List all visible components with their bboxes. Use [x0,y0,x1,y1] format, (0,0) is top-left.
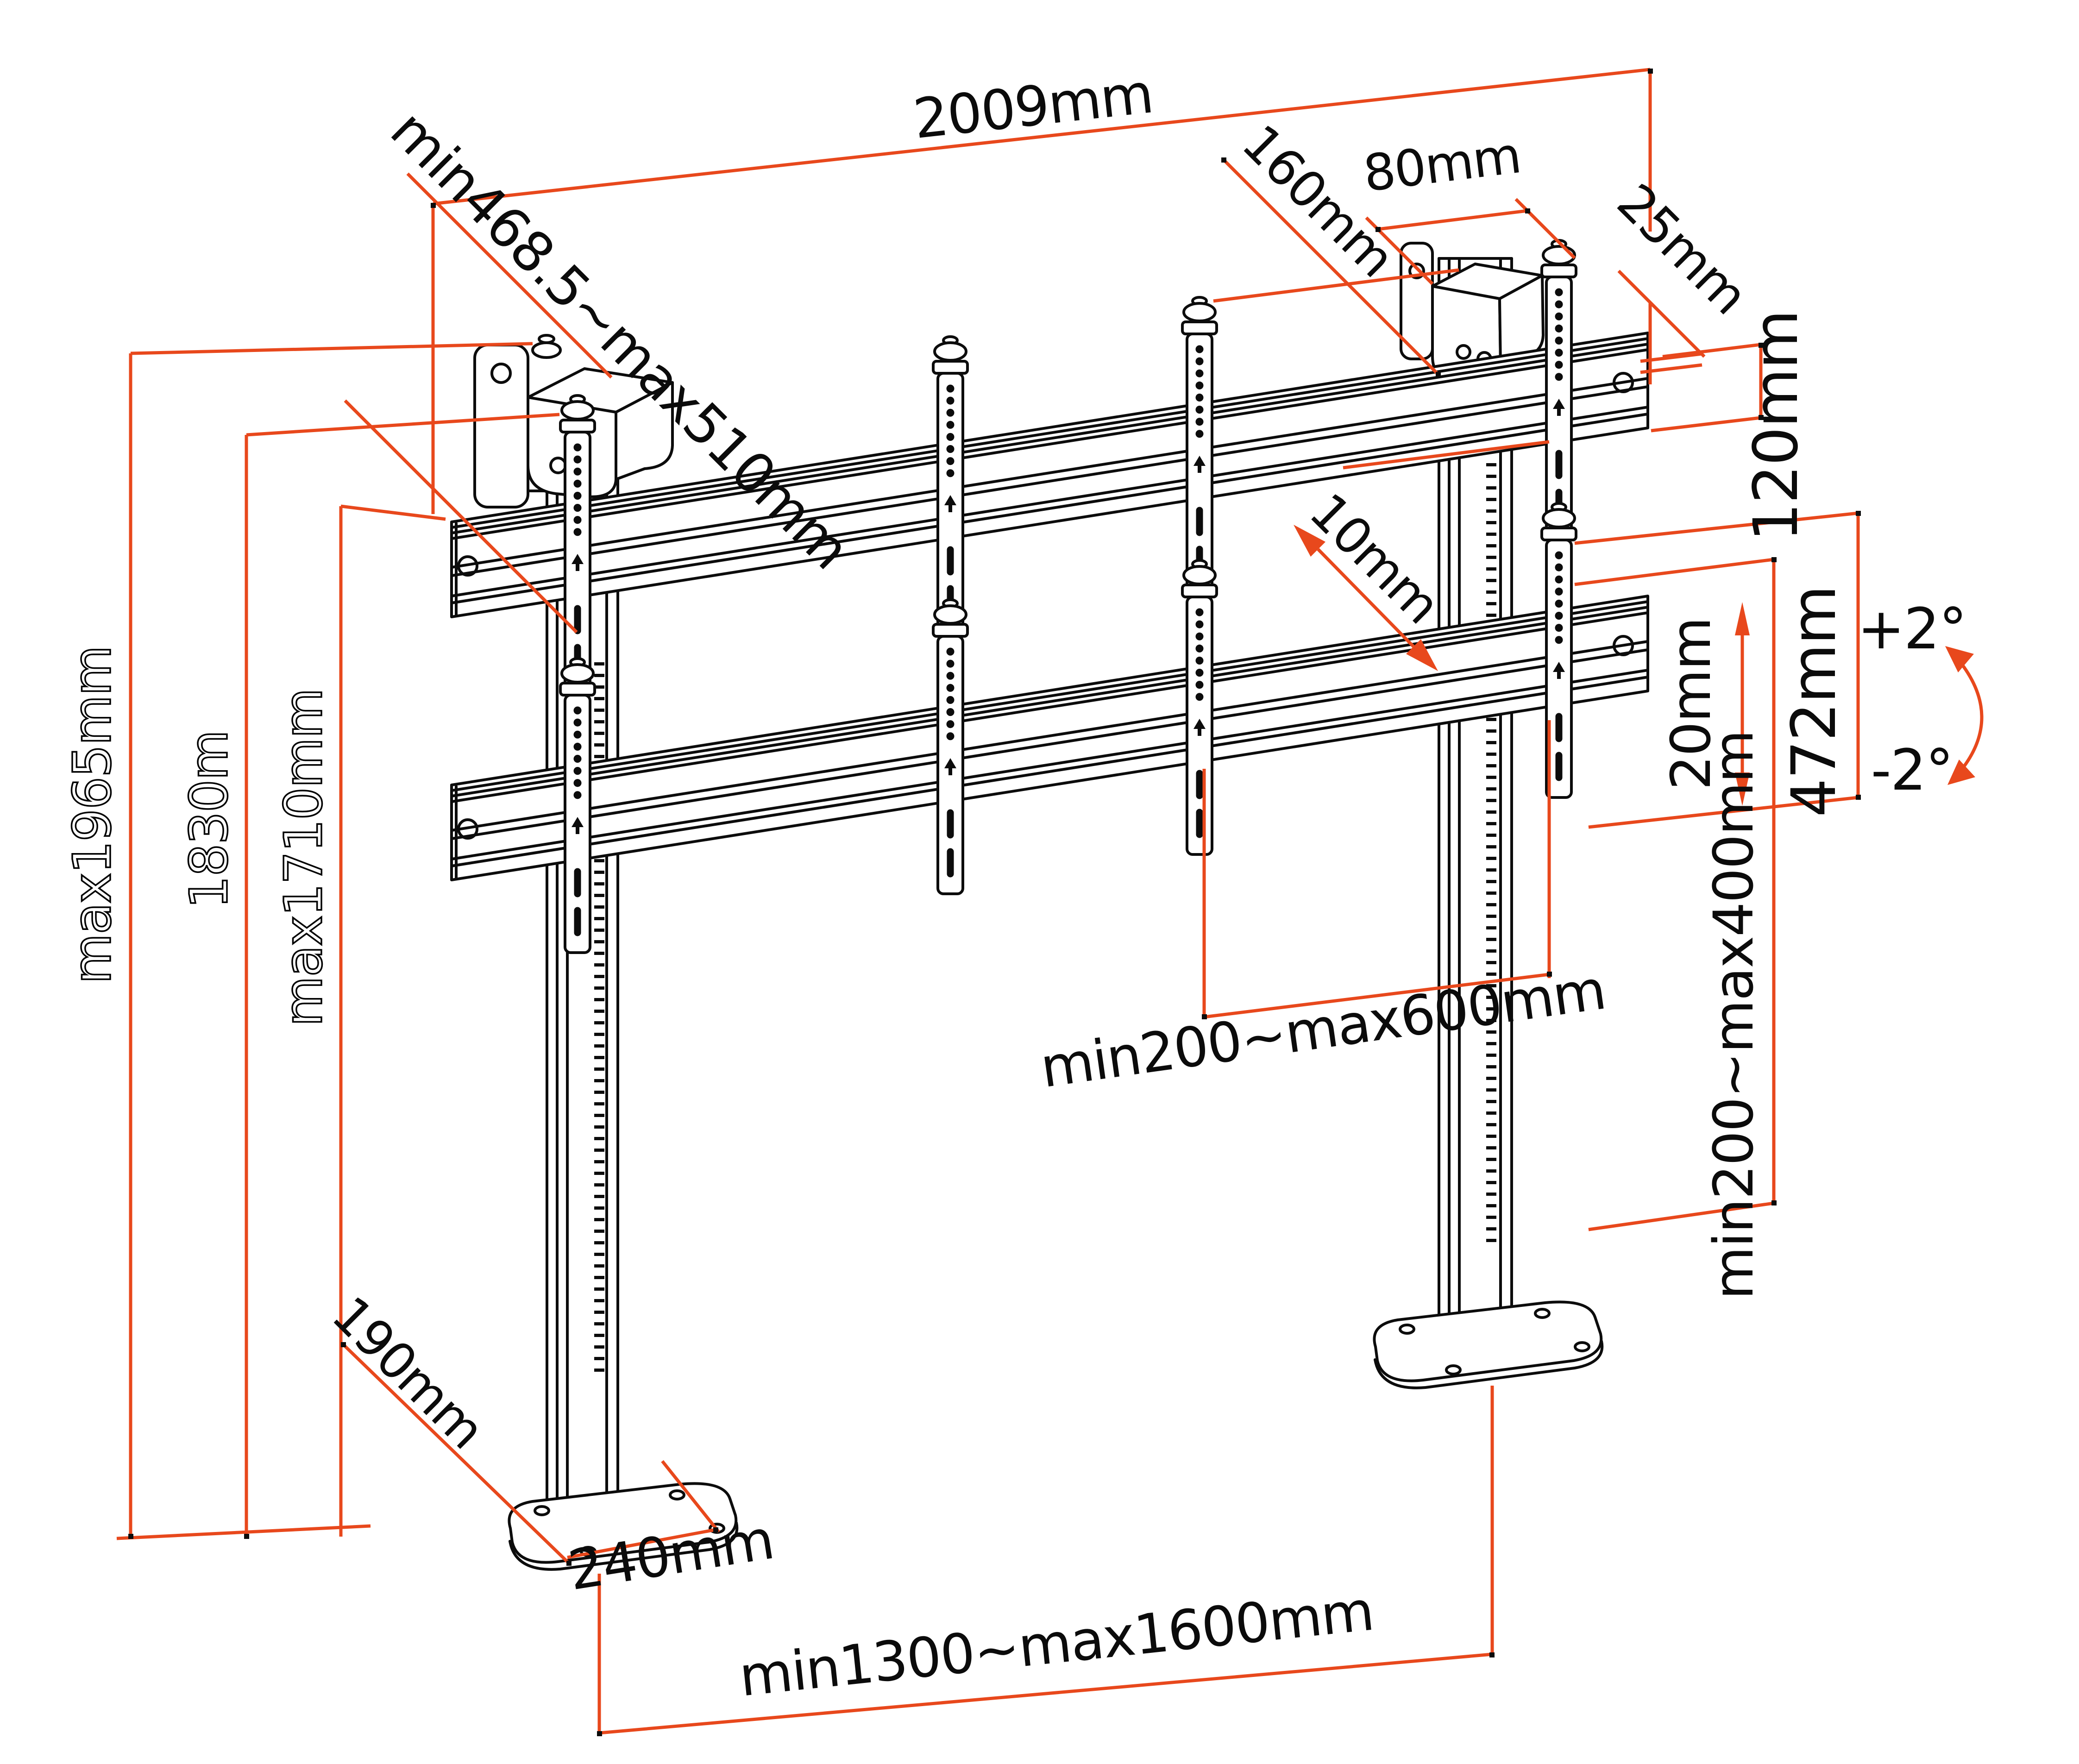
floor-stand-dimension-diagram: 2009mm min468.5~max510mm 160mm 80mm 25mm… [0,0,2079,1764]
dim-label-tilt-down: -2° [1871,737,1953,803]
dim-label-vesa-height: min200~max400mm [1702,731,1765,1300]
endpoint-dot [1648,69,1653,74]
dim-label-bracket-height: 472mm [1778,586,1850,817]
tv-mount-strip [1182,560,1217,854]
strip-plate [560,683,595,695]
extension-line [1575,559,1774,584]
strip-plate [560,420,595,432]
diagram-stage: 2009mm min468.5~max510mm 160mm 80mm 25mm… [0,0,2079,1764]
dim-label-tilt-up: +2° [1858,596,1966,662]
endpoint-dot [1856,511,1861,516]
strip-plate [933,361,967,373]
endpoint-dot [244,1534,249,1539]
endpoint-dot [1436,372,1441,377]
left-shelf-knob-cap [539,335,554,343]
dim-label-depth-adjust: 10mm [1298,483,1451,635]
dim-label-height-rail: max1710mm [274,689,334,1026]
strip-knob [1543,509,1575,527]
left-shelf-wall-plate [475,345,528,507]
strip-knob [1184,566,1215,584]
tv-mount-strip [1182,297,1217,591]
floor-tick [117,1526,371,1538]
extension-line [1575,513,1858,543]
dim-label-base-offset: 190mm [321,1286,495,1460]
strip-knob [562,402,593,419]
tv-mount-strip [560,659,595,953]
endpoint-dot [1489,1652,1495,1657]
dim-label-top-width: 2009mm [910,61,1156,151]
tv-mount-strip [933,600,967,894]
dim-label-rail-offset: 25mm [1606,173,1758,326]
strip-plate [933,624,967,636]
left-shelf-knob [533,343,560,358]
extension-line [341,506,446,519]
endpoint-dot [1221,157,1226,163]
dim-label-height-max: max1965mm [63,646,123,984]
strip-plate [1542,528,1576,540]
tilt-arc [1953,654,1982,777]
dim-line [1378,211,1527,229]
dim-label-height-mid: 1830m [179,731,239,909]
dimension-endpoint-dots [128,69,1861,1736]
dim-label-column-spacing: min1300~max1600mm [736,1579,1376,1709]
stand-drawing [452,240,1648,1569]
strip-knob [935,606,966,623]
endpoint-dot [1771,1200,1777,1205]
strip-knob [1184,303,1215,321]
strip-plate [1182,585,1217,597]
tv-mount-strip [560,395,595,690]
right-base-plate [1374,1302,1602,1387]
dim-label-shelf-width: 80mm [1360,126,1524,203]
dim-label-vesa-width: min200~max600mm [1036,958,1609,1100]
dim-label-rail-height: 120mm [1740,310,1812,541]
strip-knob [562,665,593,682]
endpoint-dot [1771,557,1777,562]
dimension-labels: 2009mm min468.5~max510mm 160mm 80mm 25mm… [63,61,1966,1708]
tv-mount-strip [1542,503,1576,797]
extension-line [131,344,533,353]
tv-mount-strip [1542,240,1576,534]
endpoint-dot [128,1534,133,1539]
strip-plate [1542,265,1576,277]
endpoint-dot [1525,208,1530,213]
endpoint-dot [597,1731,602,1736]
endpoint-dot [1856,795,1861,800]
strip-plate [1182,322,1217,334]
endpoint-dot [431,203,436,208]
tv-mount-strip [933,337,967,631]
strip-knob [935,343,966,360]
arrowhead-icon [1735,602,1750,635]
